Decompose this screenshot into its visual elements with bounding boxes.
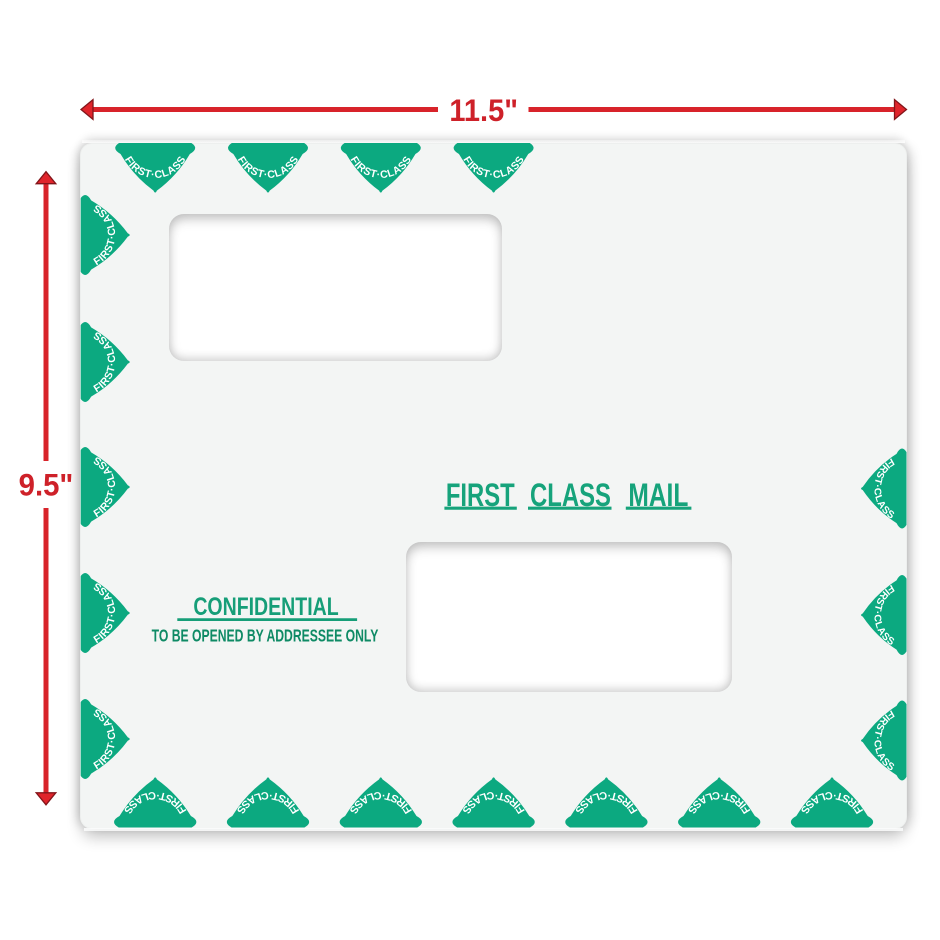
svg-text:9.5": 9.5" <box>19 469 74 503</box>
svg-text:TO BE OPENED BY ADDRESSEE ONLY: TO BE OPENED BY ADDRESSEE ONLY <box>152 626 379 646</box>
svg-text:CONFIDENTIAL: CONFIDENTIAL <box>193 593 339 621</box>
svg-text:11.5": 11.5" <box>449 94 518 128</box>
